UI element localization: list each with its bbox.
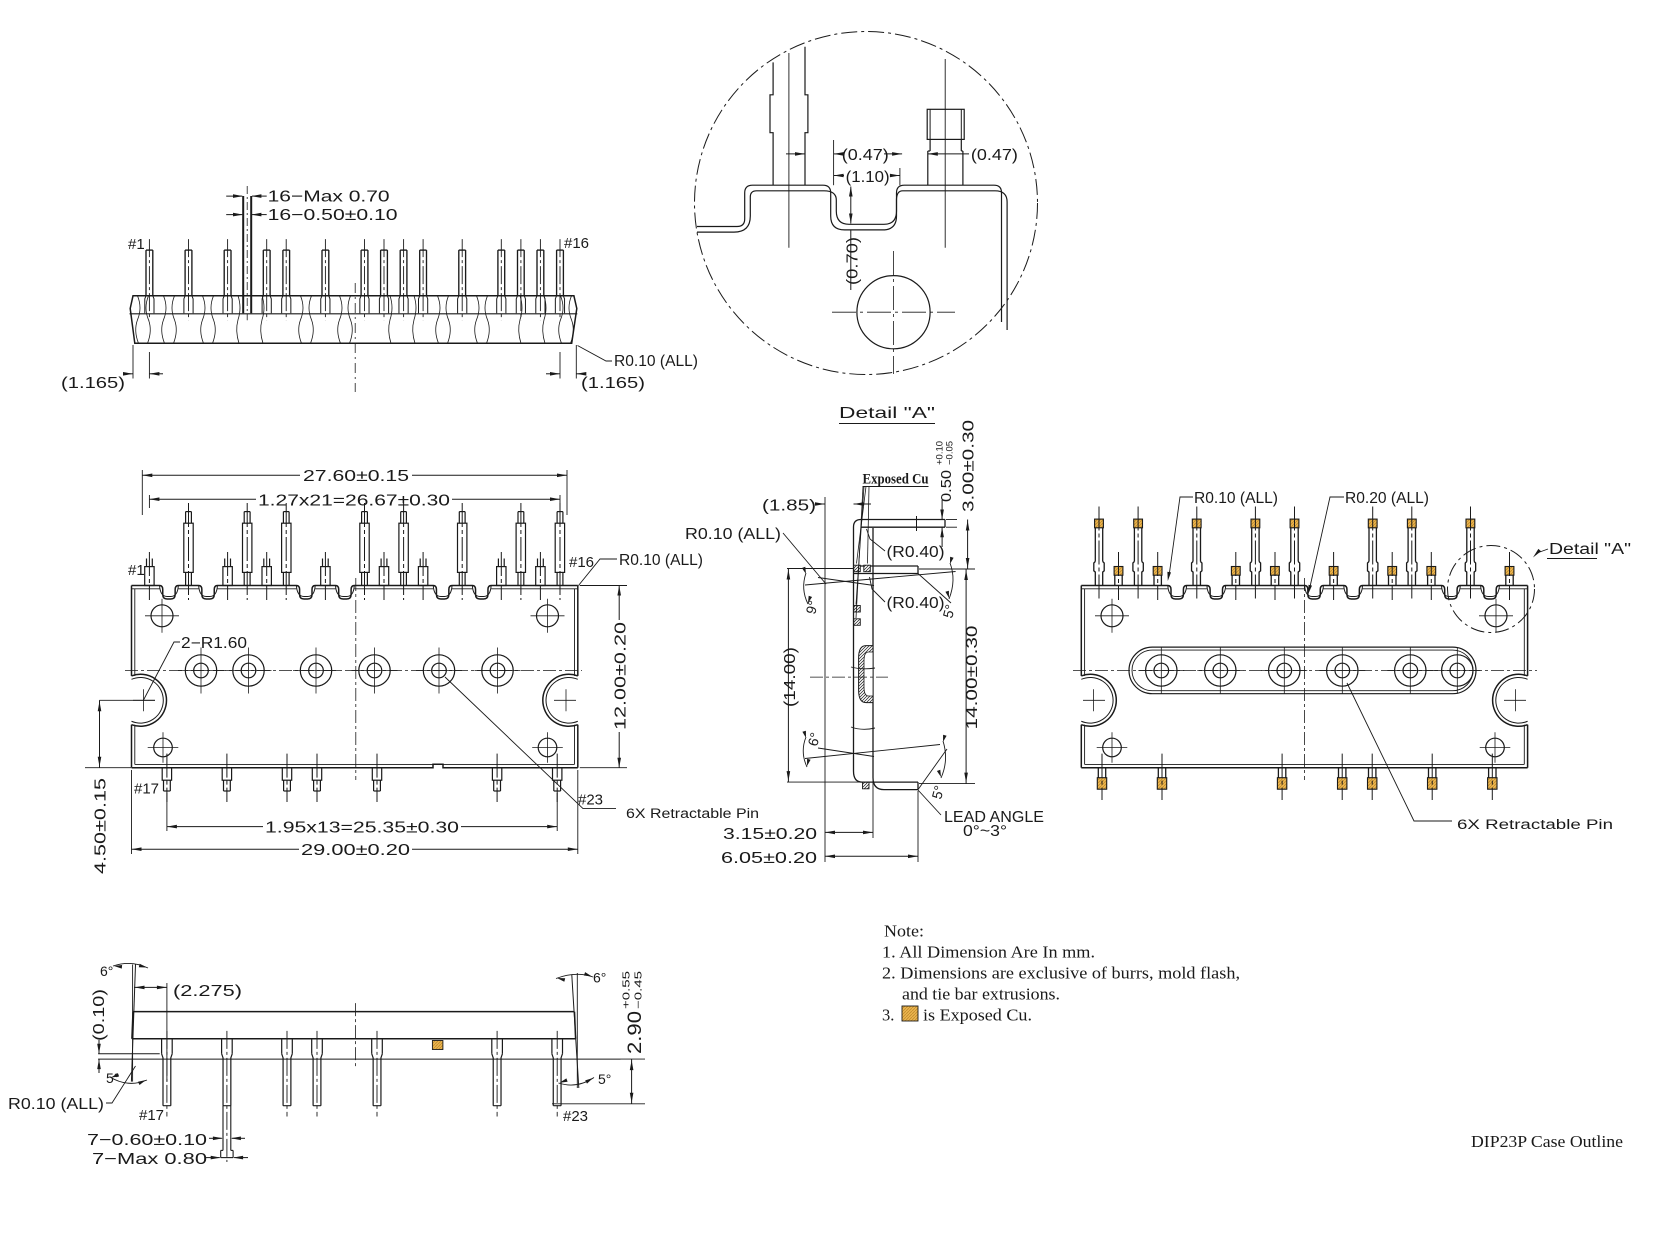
svg-text:29.00±0.20: 29.00±0.20 <box>301 842 410 859</box>
svg-text:14.00±0.30: 14.00±0.30 <box>964 625 981 730</box>
svg-text:#16: #16 <box>564 235 589 252</box>
svg-text:6X Retractable Pin: 6X Retractable Pin <box>626 806 759 821</box>
svg-text:Exposed Cu: Exposed Cu <box>863 472 929 488</box>
svg-text:16−0.50±0.10: 16−0.50±0.10 <box>268 207 398 224</box>
svg-text:(0.47): (0.47) <box>971 147 1018 164</box>
svg-text:6°: 6° <box>100 963 113 979</box>
svg-text:R0.20 (ALL): R0.20 (ALL) <box>1345 490 1429 507</box>
svg-text:R0.10 (ALL): R0.10 (ALL) <box>619 552 703 569</box>
svg-text:(R0.40): (R0.40) <box>887 544 945 561</box>
svg-text:and tie bar extrusions.: and tie bar extrusions. <box>902 985 1060 1004</box>
svg-text:#16: #16 <box>569 554 594 571</box>
svg-text:6X Retractable Pin: 6X Retractable Pin <box>1457 817 1613 832</box>
svg-text:#23: #23 <box>578 792 603 809</box>
svg-text:6.05±0.20: 6.05±0.20 <box>721 850 817 867</box>
svg-text:5°: 5° <box>598 1071 611 1087</box>
svg-text:#1: #1 <box>128 236 145 253</box>
svg-text:0.50: 0.50 <box>938 470 955 502</box>
svg-text:+0.55: +0.55 <box>622 970 633 1009</box>
svg-text:#17: #17 <box>134 781 159 798</box>
svg-text:2. Dimensions are exclusive of: 2. Dimensions are exclusive of burrs, mo… <box>882 964 1240 983</box>
svg-text:R0.10 (ALL): R0.10 (ALL) <box>1194 490 1278 507</box>
svg-text:R0.10 (ALL): R0.10 (ALL) <box>8 1096 104 1113</box>
svg-text:(0.70): (0.70) <box>845 237 862 285</box>
svg-text:Detail "A": Detail "A" <box>839 405 935 422</box>
svg-text:2.90: 2.90 <box>625 1011 646 1054</box>
svg-text:#23: #23 <box>563 1108 588 1125</box>
svg-text:(0.10): (0.10) <box>91 989 108 1041</box>
svg-text:R0.10 (ALL): R0.10 (ALL) <box>614 353 698 370</box>
svg-text:4.50±0.15: 4.50±0.15 <box>93 778 110 874</box>
svg-text:0°~3°: 0°~3° <box>963 823 1007 840</box>
svg-text:Detail "A": Detail "A" <box>1549 541 1631 558</box>
svg-text:6°: 6° <box>593 970 606 986</box>
svg-text:(14.00): (14.00) <box>782 647 799 707</box>
svg-text:3.00±0.30: 3.00±0.30 <box>961 419 978 512</box>
svg-text:(1.165): (1.165) <box>61 375 125 392</box>
svg-text:(1.10): (1.10) <box>846 169 890 186</box>
svg-text:16−Max 0.70: 16−Max 0.70 <box>268 189 390 206</box>
svg-text:(R0.40): (R0.40) <box>887 595 945 612</box>
svg-text:−0.45: −0.45 <box>634 970 645 1009</box>
svg-text:#17: #17 <box>139 1107 164 1124</box>
svg-text:1.27x21=26.67±0.30: 1.27x21=26.67±0.30 <box>258 493 450 510</box>
svg-text:(0.47): (0.47) <box>842 147 889 164</box>
svg-text:(2.275): (2.275) <box>173 983 242 1000</box>
svg-text:#1: #1 <box>128 562 145 579</box>
svg-text:7−Max 0.80: 7−Max 0.80 <box>92 1151 207 1168</box>
svg-text:1.95x13=25.35±0.30: 1.95x13=25.35±0.30 <box>265 820 459 837</box>
svg-text:3.: 3. <box>882 1006 894 1025</box>
svg-text:27.60±0.15: 27.60±0.15 <box>303 468 409 485</box>
svg-text:2−R1.60: 2−R1.60 <box>181 635 247 652</box>
svg-text:5°: 5° <box>106 1070 119 1086</box>
svg-text:1. All Dimension Are In mm.: 1. All Dimension Are In mm. <box>882 943 1095 962</box>
svg-text:7−0.60±0.10: 7−0.60±0.10 <box>87 1132 207 1149</box>
svg-text:DIP23P Case Outline: DIP23P Case Outline <box>1471 1132 1623 1151</box>
svg-text:is Exposed Cu.: is Exposed Cu. <box>923 1006 1032 1025</box>
svg-text:−0.05: −0.05 <box>945 441 956 465</box>
svg-text:3.15±0.20: 3.15±0.20 <box>723 826 817 843</box>
svg-text:(1.165): (1.165) <box>581 375 645 392</box>
svg-text:(1.85): (1.85) <box>762 498 816 515</box>
svg-text:R0.10 (ALL): R0.10 (ALL) <box>685 526 781 543</box>
svg-text:12.00±0.20: 12.00±0.20 <box>613 622 630 730</box>
svg-text:Note:: Note: <box>884 922 924 941</box>
